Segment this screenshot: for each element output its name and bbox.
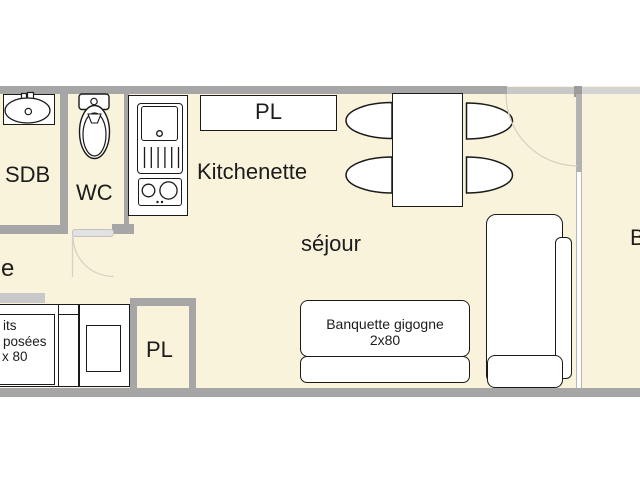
wall-hall-right — [112, 224, 134, 234]
wall-sdb-wc — [60, 86, 68, 234]
stove-top — [138, 178, 182, 206]
room-label-sdb: SDB — [5, 162, 50, 187]
wall-closet-right — [189, 298, 196, 390]
sofa-bottom-cushion — [487, 355, 563, 388]
wall-bottom — [0, 388, 640, 397]
wall-hall-left — [0, 225, 61, 235]
closet-bottom-label: PL — [146, 337, 173, 362]
room-label-sejour: séjour — [301, 231, 361, 256]
bunk-bed-pillow — [86, 325, 121, 372]
window-bay — [576, 172, 583, 388]
banquette-label-line1: Banquette gigogne — [300, 317, 470, 332]
bunk-bed-label-line3: x 80 — [2, 350, 28, 365]
closet-top-label: PL — [200, 99, 337, 124]
kitchen-sink-basin — [141, 106, 178, 141]
bathroom-sink-counter — [3, 94, 55, 125]
wall-entree-low — [0, 293, 45, 303]
bunk-bed-divider-2 — [78, 304, 80, 387]
balcony-door-leaf-closed — [507, 87, 575, 94]
wall-closet-left — [130, 298, 137, 390]
entree-label-partial: e — [1, 255, 14, 283]
banquette-label-line2: 2x80 — [300, 333, 470, 348]
floor-plan: SDB WC Kitchenette PL séjour PL e B Banq… — [0, 0, 640, 480]
wall-top-balcony — [582, 87, 640, 94]
balcony-door-post — [576, 94, 583, 172]
banquette-bottom — [300, 356, 470, 383]
room-label-wc: WC — [76, 180, 113, 205]
bunk-bed-divider-1 — [58, 304, 60, 387]
wall-closet-top — [130, 298, 197, 306]
room-label-kitchenette: Kitchenette — [197, 159, 307, 184]
balcony-label-partial: B — [630, 225, 640, 250]
bunk-bed-label-line1: its — [3, 319, 17, 334]
bunk-bed-label-line2: posées — [3, 335, 47, 350]
wc-door-leaf — [72, 229, 114, 237]
bunk-bed-ladder-line — [58, 314, 80, 315]
dining-table — [392, 93, 463, 207]
